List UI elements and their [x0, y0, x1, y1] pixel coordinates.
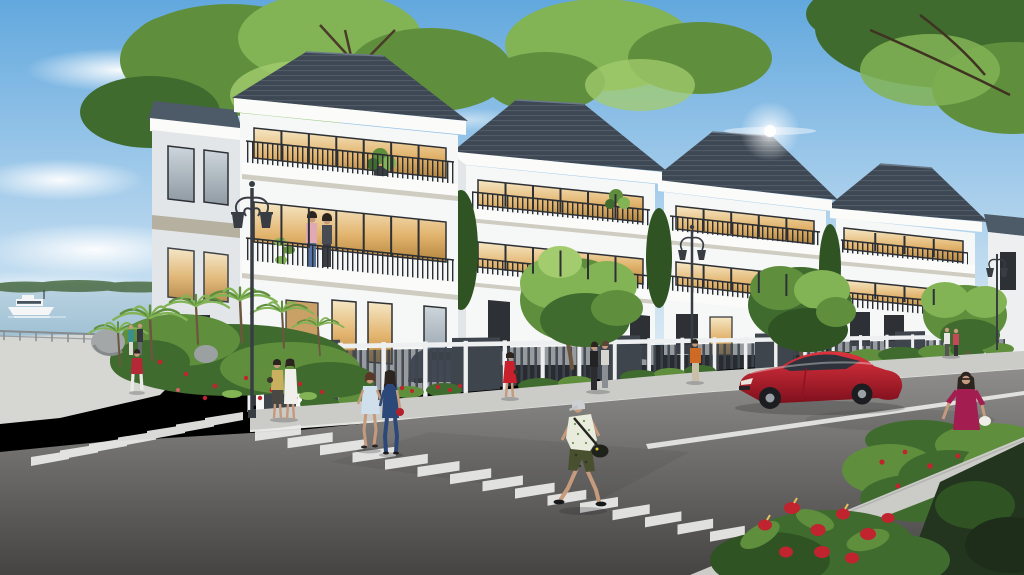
boulder [194, 345, 218, 363]
scene-canvas [0, 0, 1024, 575]
fence-post [464, 341, 468, 395]
white-handbag [979, 416, 991, 426]
fence-post [744, 337, 748, 373]
villa-street-rendering [0, 0, 1024, 575]
red-handbag [396, 408, 404, 416]
fence-post [613, 339, 617, 383]
distant-tree-line [0, 280, 178, 293]
gap-foliage [646, 208, 672, 308]
duffel-bag [592, 445, 609, 458]
